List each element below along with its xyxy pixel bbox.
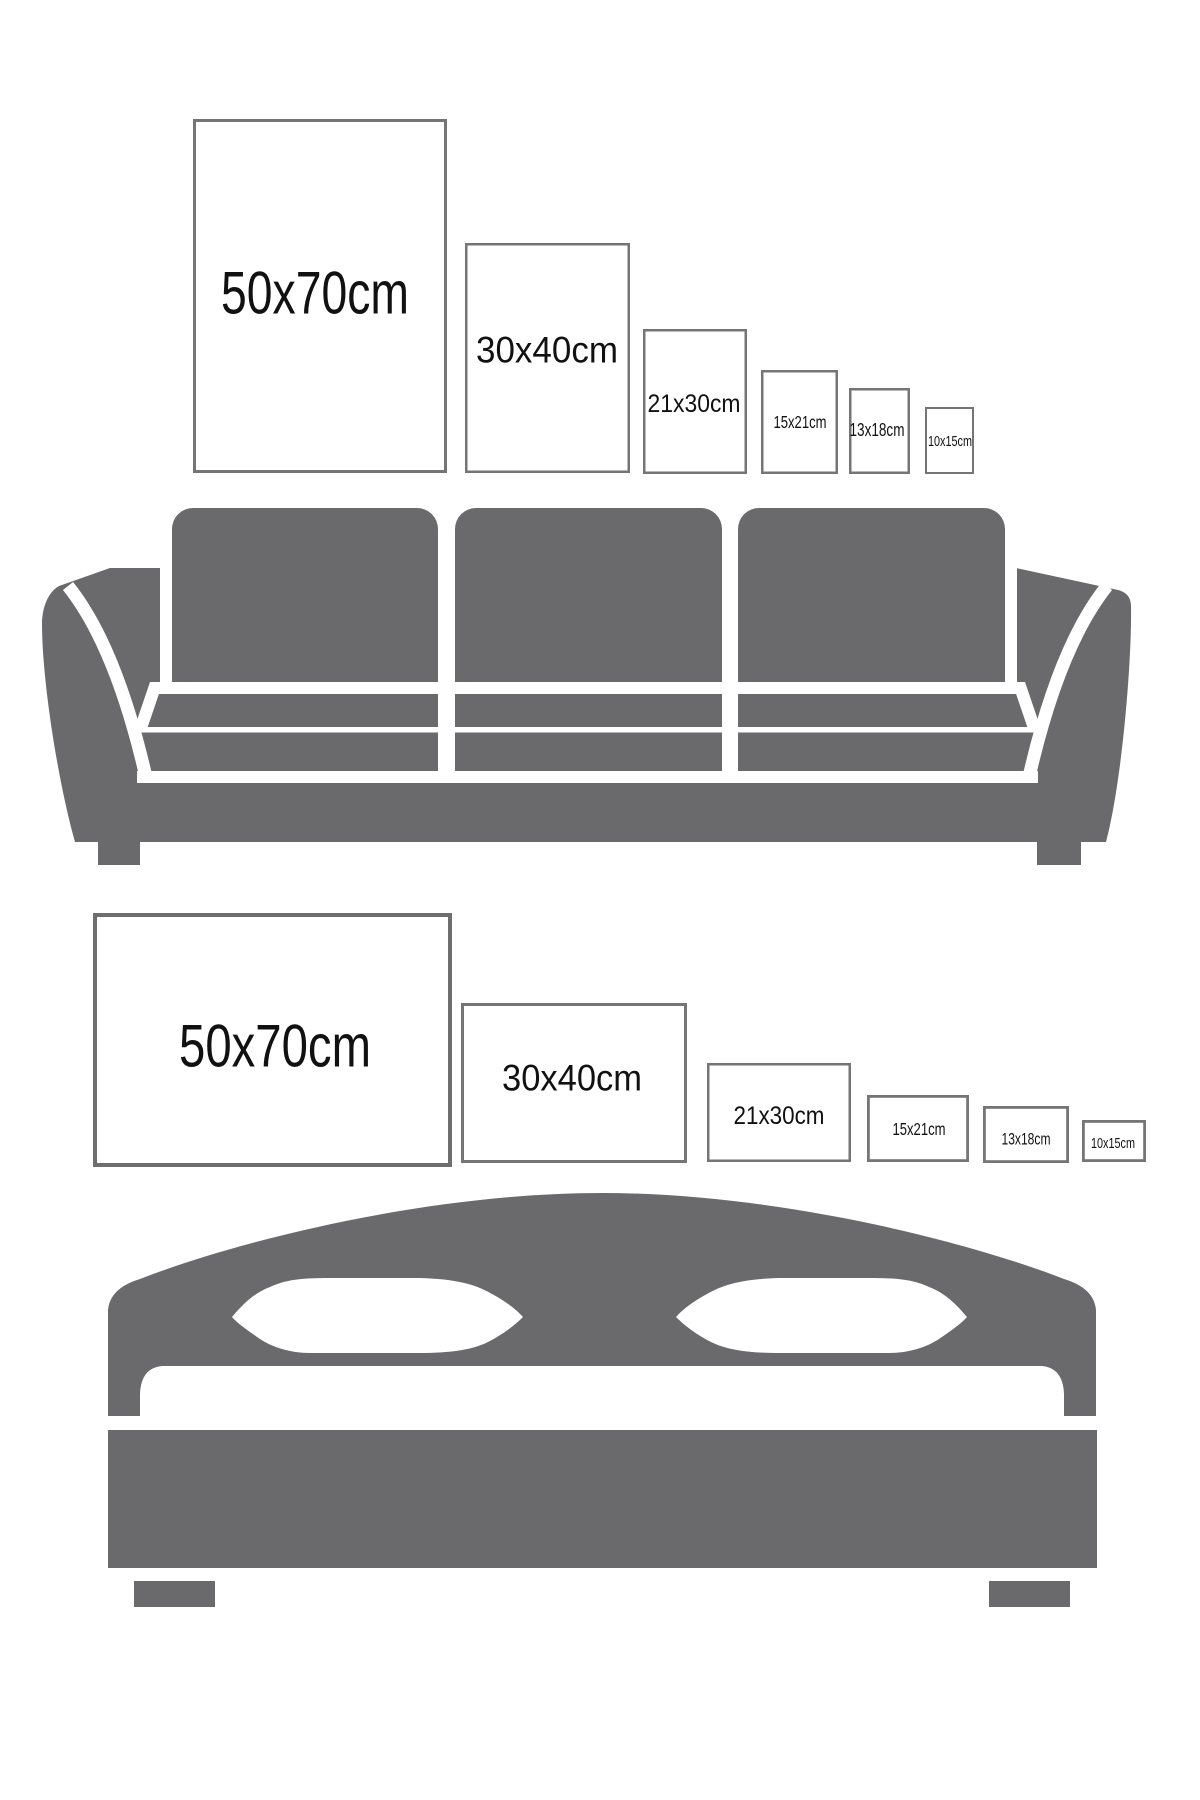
svg-text:15x21cm: 15x21cm xyxy=(893,1119,946,1139)
svg-text:30x40cm: 30x40cm xyxy=(502,1058,642,1099)
svg-text:21x30cm: 21x30cm xyxy=(734,1102,825,1130)
svg-text:13x18cm: 13x18cm xyxy=(1002,1130,1051,1149)
svg-text:10x15cm: 10x15cm xyxy=(1091,1136,1135,1152)
svg-text:13x18cm: 13x18cm xyxy=(850,420,905,440)
svg-text:10x15cm: 10x15cm xyxy=(928,434,972,450)
svg-text:21x30cm: 21x30cm xyxy=(648,390,741,418)
svg-text:15x21cm: 15x21cm xyxy=(774,412,827,432)
svg-text:30x40cm: 30x40cm xyxy=(476,330,618,371)
svg-text:50x70cm: 50x70cm xyxy=(221,260,409,327)
svg-text:50x70cm: 50x70cm xyxy=(179,1013,371,1080)
